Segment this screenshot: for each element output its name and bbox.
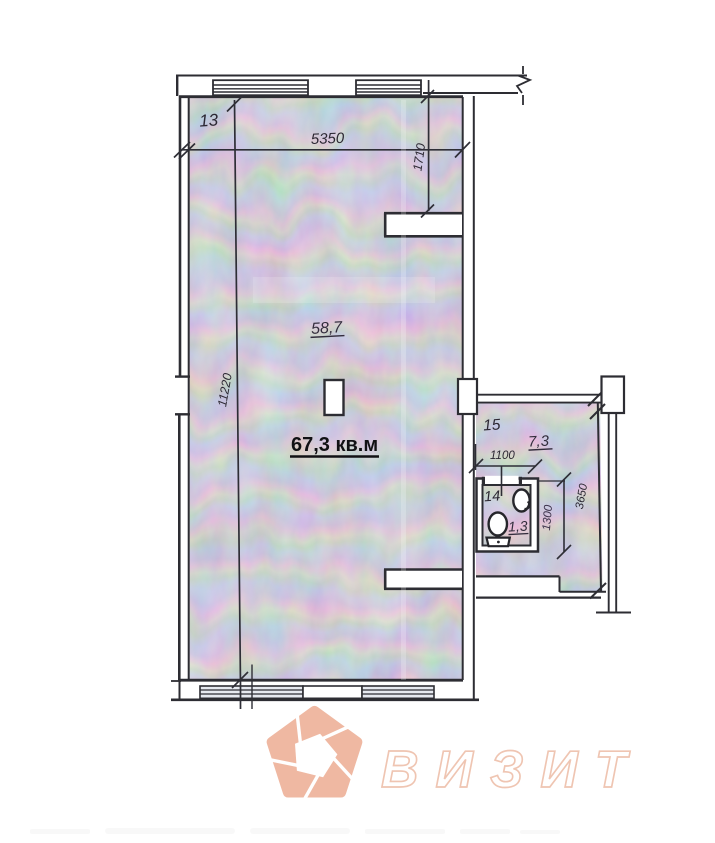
svg-text:1100: 1100	[490, 450, 515, 462]
svg-text:1300: 1300	[541, 504, 555, 531]
svg-text:14: 14	[484, 488, 501, 505]
svg-text:1,3: 1,3	[508, 518, 528, 535]
svg-text:13: 13	[199, 110, 220, 130]
svg-text:5350: 5350	[311, 130, 346, 148]
svg-text:7,3: 7,3	[528, 433, 550, 451]
svg-text:15: 15	[483, 416, 502, 434]
svg-text:67,3 кв.м: 67,3 кв.м	[291, 434, 378, 456]
svg-text:ВИЗИТ: ВИЗИТ	[381, 741, 644, 799]
svg-text:58,7: 58,7	[311, 319, 344, 338]
